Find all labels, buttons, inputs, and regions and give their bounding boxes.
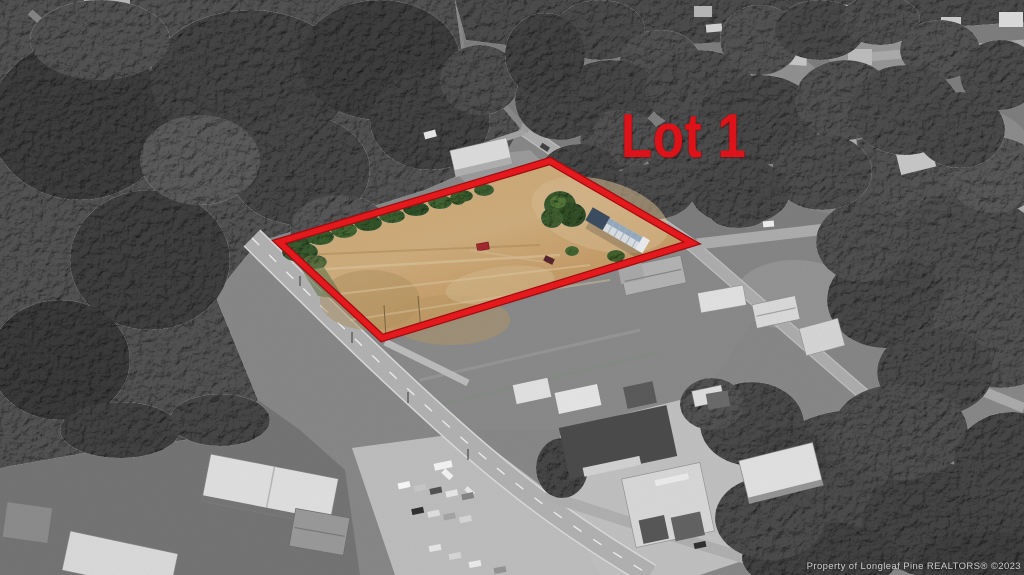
scene-svg <box>0 0 1024 575</box>
watermark-text: Property of Longleaf Pine REALTORS® ©202… <box>807 561 1021 572</box>
lot-label: Lot 1 <box>621 106 747 168</box>
aerial-photo: Lot 1 Property of Longleaf Pine REALTORS… <box>0 0 1024 575</box>
grain-overlay <box>0 0 1024 575</box>
